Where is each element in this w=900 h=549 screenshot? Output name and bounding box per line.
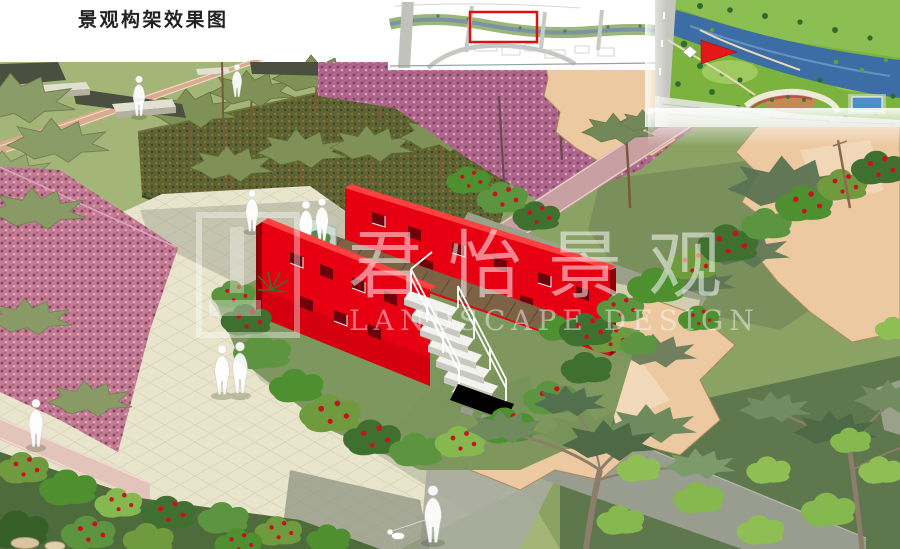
inset-site-plan: [388, 0, 662, 70]
rock: [11, 538, 39, 549]
inset-left-fade: [645, 0, 667, 127]
inset-bottom-fade: [648, 108, 900, 146]
render-canvas: [0, 0, 900, 549]
inset-master-plan: [645, 0, 900, 146]
drawing-title: 景观构架效果图: [78, 5, 229, 32]
rock: [45, 542, 65, 549]
design-sheet: 君怡景观 LANDSCAPE DESIGN 景观构架效果图: [0, 0, 900, 549]
